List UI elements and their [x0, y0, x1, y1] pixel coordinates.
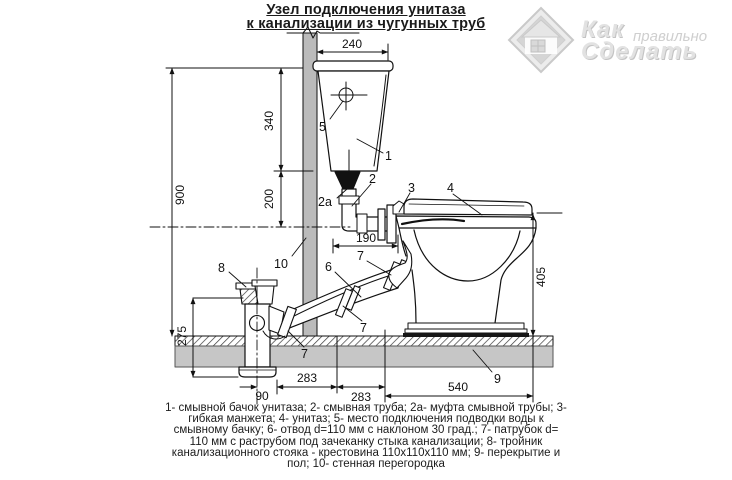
svg-text:7: 7 [301, 347, 308, 361]
svg-text:1: 1 [385, 149, 392, 163]
dim-900: 900 [166, 68, 303, 336]
svg-text:405: 405 [534, 267, 548, 287]
callout-8: 8 [218, 261, 246, 287]
svg-text:190: 190 [356, 231, 376, 245]
svg-text:4: 4 [447, 181, 454, 195]
tank-lid [313, 61, 393, 71]
svg-text:340: 340 [262, 111, 276, 131]
svg-text:8: 8 [218, 261, 225, 275]
svg-text:240: 240 [342, 37, 362, 51]
svg-text:283: 283 [297, 371, 317, 385]
svg-text:7: 7 [357, 249, 364, 263]
svg-text:275: 275 [175, 326, 189, 346]
tank-body [318, 71, 389, 171]
stack-flange [239, 367, 276, 377]
svg-text:200: 200 [262, 189, 276, 209]
dim-405: 405 [533, 213, 562, 402]
legend-line: смывному бачку; 6- отвод d=110 мм с накл… [0, 425, 732, 436]
svg-text:10: 10 [274, 257, 288, 271]
legend-line: пол; 10- стенная перегородка [0, 459, 732, 470]
svg-text:540: 540 [448, 380, 468, 394]
toilet-base [403, 333, 529, 337]
toilet-bowl [389, 199, 536, 337]
flush-pipe-coupling [335, 172, 360, 189]
pipe-flange [378, 209, 385, 240]
svg-text:6: 6 [325, 260, 332, 274]
toilet-lid [404, 199, 532, 215]
callout-10: 10 [274, 238, 306, 271]
svg-text:90: 90 [255, 389, 269, 403]
svg-text:2: 2 [369, 172, 376, 186]
svg-text:5: 5 [319, 120, 326, 134]
dim-240: 240 [317, 37, 388, 60]
legend: 1- смывной бачок унитаза; 2- смывная тру… [0, 403, 732, 470]
callout-7-middle: 7 [343, 306, 367, 335]
svg-text:9: 9 [494, 372, 501, 386]
svg-text:7: 7 [360, 321, 367, 335]
dim-200: 200 [262, 171, 281, 227]
svg-text:3: 3 [408, 181, 415, 195]
flush-tank [313, 61, 393, 171]
dim-90: 90 [240, 380, 277, 403]
schematic-page: Узел подключения унитаза к канализации и… [0, 0, 732, 480]
dim-540: 540 [385, 380, 533, 396]
floor-slab [175, 336, 553, 367]
svg-text:900: 900 [173, 185, 187, 205]
svg-text:2a: 2a [318, 195, 332, 209]
callout-7-upper: 7 [357, 249, 391, 275]
